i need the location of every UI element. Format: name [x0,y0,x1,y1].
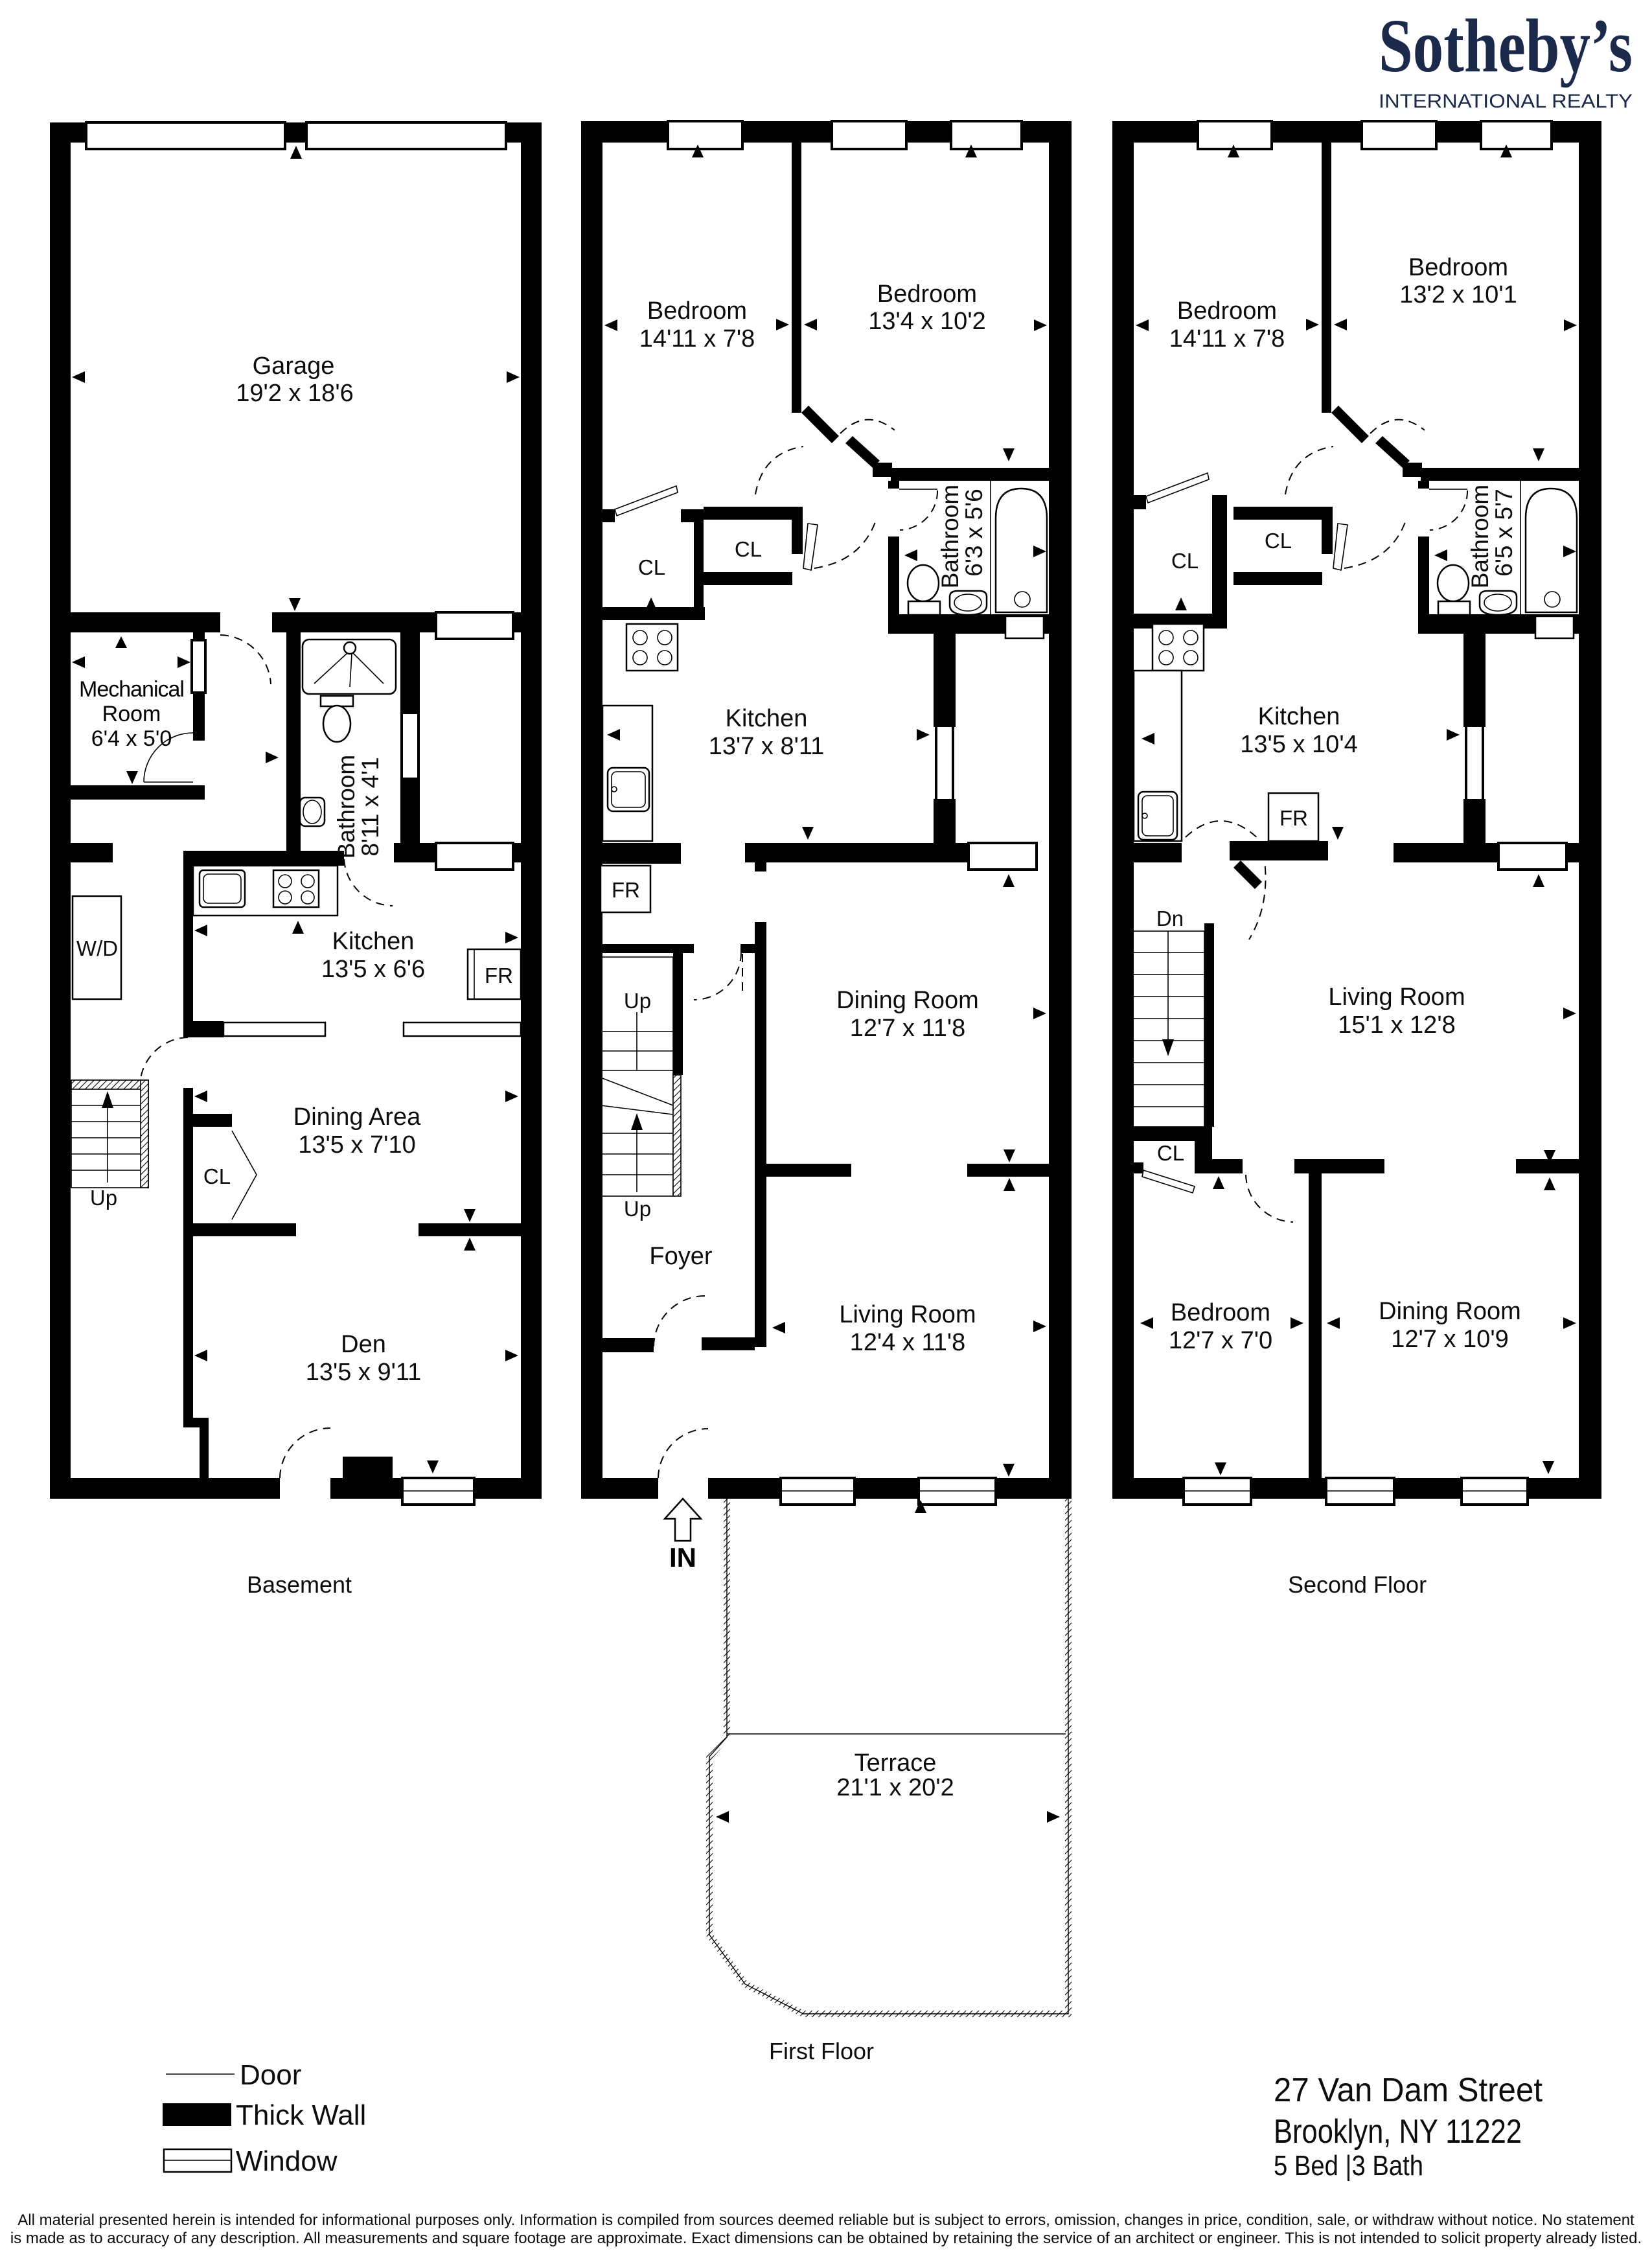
svg-text:Bedroom: Bedroom [647,297,747,325]
svg-text:Terrace: Terrace [855,1749,937,1777]
svg-text:Bedroom: Bedroom [1408,254,1508,281]
svg-text:Den: Den [341,1331,386,1358]
svg-text:Up: Up [90,1186,117,1210]
svg-text:Bathroom: Bathroom [1467,485,1493,588]
svg-text:CL: CL [735,537,762,561]
svg-text:FR: FR [1279,806,1308,830]
svg-text:5 Bed |3 Bath: 5 Bed |3 Bath [1274,2150,1423,2182]
svg-text:13'5 x 6'6: 13'5 x 6'6 [321,956,425,983]
svg-text:CL: CL [203,1164,231,1188]
svg-text:13'7 x 8'11: 13'7 x 8'11 [709,733,825,760]
svg-text:FR: FR [485,964,513,987]
svg-text:Living Room: Living Room [1328,984,1465,1011]
svg-text:13'4 x 10'2: 13'4 x 10'2 [868,308,985,335]
svg-text:8'11 x 4'1: 8'11 x 4'1 [357,757,384,856]
svg-text:Second Floor: Second Floor [1288,1571,1427,1598]
svg-text:Up: Up [624,989,651,1013]
svg-text:Bedroom: Bedroom [1171,1299,1270,1326]
svg-text:21'1 x 20'2: 21'1 x 20'2 [836,1774,954,1801]
svg-text:Kitchen: Kitchen [1258,703,1340,730]
svg-text:W/D: W/D [76,936,118,960]
svg-text:12'7 x 11'8: 12'7 x 11'8 [850,1015,966,1042]
svg-text:Bathroom: Bathroom [937,485,963,588]
svg-text:Bedroom: Bedroom [1177,297,1277,325]
svg-text:6'4 x 5'0: 6'4 x 5'0 [91,726,172,751]
svg-text:Dining Room: Dining Room [1379,1298,1521,1325]
svg-text:13'5 x 9'11: 13'5 x 9'11 [306,1359,422,1386]
svg-text:Door: Door [240,2059,301,2091]
svg-text:13'5 x 7'10: 13'5 x 7'10 [298,1131,415,1159]
svg-text:Foyer: Foyer [649,1243,712,1270]
svg-text:Bathroom: Bathroom [333,755,360,859]
svg-text:First Floor: First Floor [769,2038,874,2064]
svg-text:Dining Room: Dining Room [836,987,979,1014]
svg-text:Thick Wall: Thick Wall [236,2099,366,2131]
svg-text:Brooklyn, NY 11222: Brooklyn, NY 11222 [1274,2113,1522,2151]
svg-text:Garage: Garage [253,352,335,380]
svg-text:Sotheby’s: Sotheby’s [1379,3,1633,88]
svg-text:Basement: Basement [247,1571,352,1598]
svg-text:13'2 x 10'1: 13'2 x 10'1 [1399,281,1517,308]
svg-text:CL: CL [1265,529,1292,553]
svg-text:14'11 x 7'8: 14'11 x 7'8 [1169,325,1285,352]
svg-text:Room: Room [102,702,161,726]
svg-text:All material presented herein: All material presented herein is intende… [17,2211,1635,2229]
svg-text:14'11 x 7'8: 14'11 x 7'8 [639,325,755,352]
svg-text:Dn: Dn [1156,906,1184,930]
svg-text:CL: CL [1171,549,1199,573]
svg-text:6'5 x 5'7: 6'5 x 5'7 [1491,489,1517,577]
svg-text:12'4 x 11'8: 12'4 x 11'8 [850,1329,966,1356]
svg-text:Window: Window [236,2145,338,2177]
svg-text:27 Van Dam Street: 27 Van Dam Street [1274,2072,1543,2109]
svg-text:15'1 x 12'8: 15'1 x 12'8 [1338,1011,1455,1039]
svg-text:6'3 x 5'6: 6'3 x 5'6 [961,489,987,577]
svg-text:12'7 x 10'9: 12'7 x 10'9 [1391,1326,1508,1353]
svg-text:CL: CL [638,555,665,579]
svg-text:Kitchen: Kitchen [332,928,415,955]
svg-text:IN: IN [669,1542,696,1573]
svg-text:12'7 x 7'0: 12'7 x 7'0 [1169,1327,1272,1354]
svg-text:19'2 x 18'6: 19'2 x 18'6 [236,380,353,407]
svg-text:Dining Area: Dining Area [293,1103,421,1131]
svg-text:Kitchen: Kitchen [726,705,808,732]
svg-text:Living Room: Living Room [839,1301,976,1328]
svg-text:INTERNATIONAL REALTY: INTERNATIONAL REALTY [1379,91,1633,112]
svg-text:13'5 x 10'4: 13'5 x 10'4 [1240,731,1357,758]
svg-text:FR: FR [612,878,640,902]
svg-text:CL: CL [1157,1141,1184,1165]
svg-text:Bedroom: Bedroom [877,281,977,308]
svg-text:Up: Up [624,1197,651,1221]
svg-text:is made as to accuracy of any: is made as to accuracy of any descriptio… [10,2230,1642,2247]
svg-text:Mechanical: Mechanical [79,677,184,702]
